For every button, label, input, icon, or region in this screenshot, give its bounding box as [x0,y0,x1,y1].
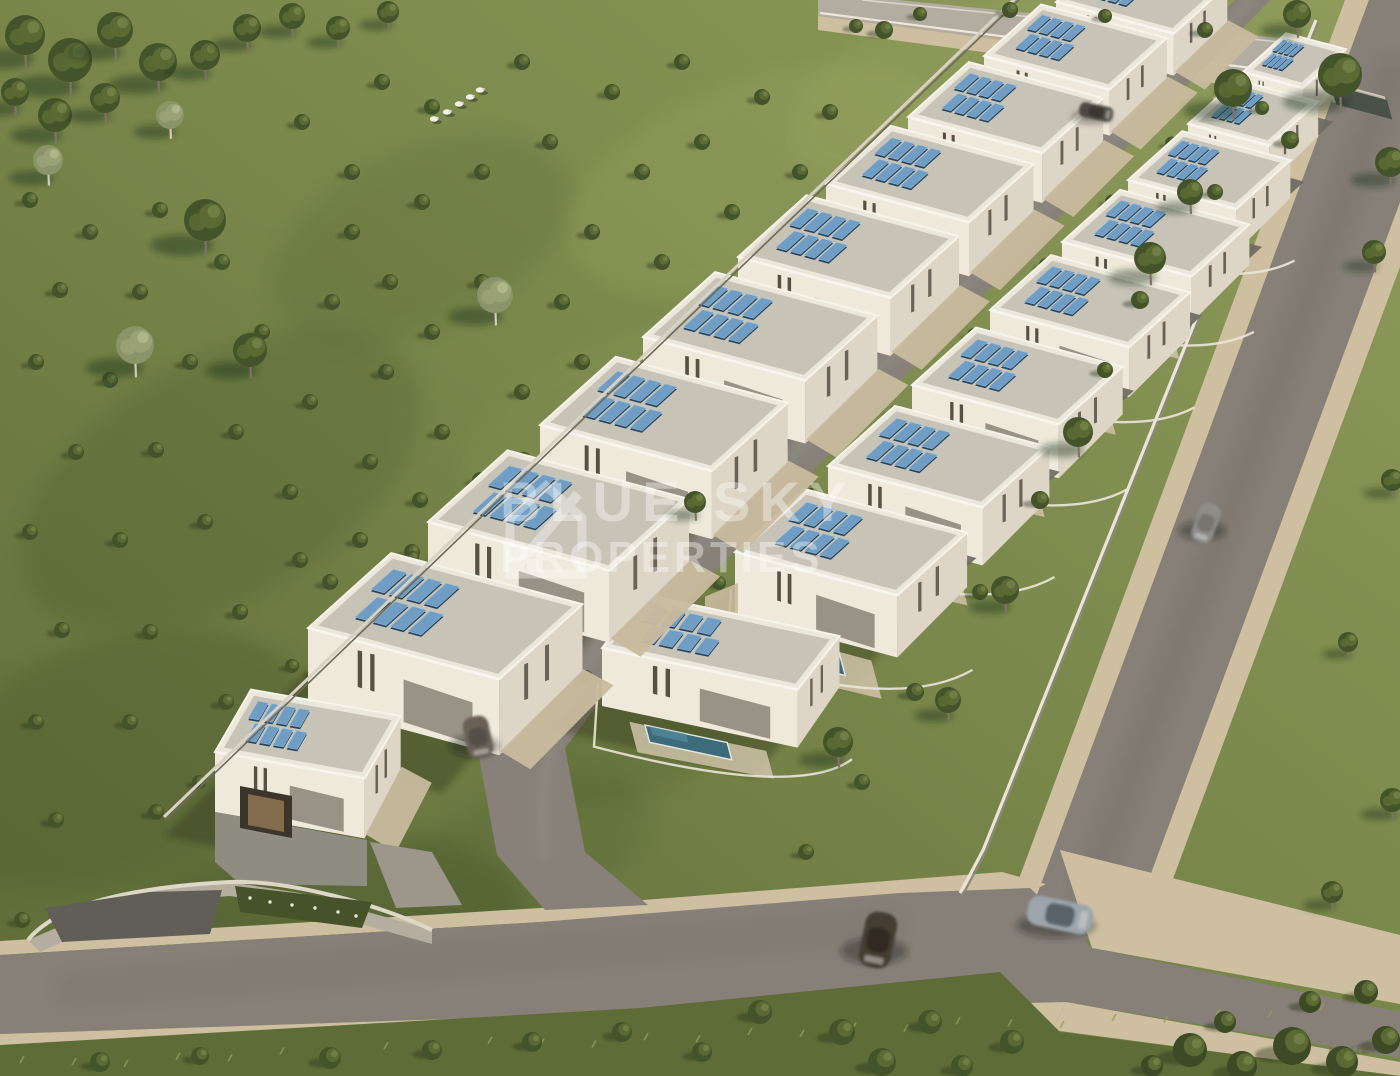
window-slit [788,574,792,605]
window-slit [358,650,362,688]
window-slit [666,669,670,698]
aerial-render: BLUE SKY PROPERTIES Uo /12 [0,0,1400,1076]
window-slit [653,666,657,695]
scene-svg [0,0,1400,1076]
window-slit [487,547,491,583]
window-slit [370,654,374,692]
window-slit [475,543,479,579]
window-slit [777,571,781,602]
